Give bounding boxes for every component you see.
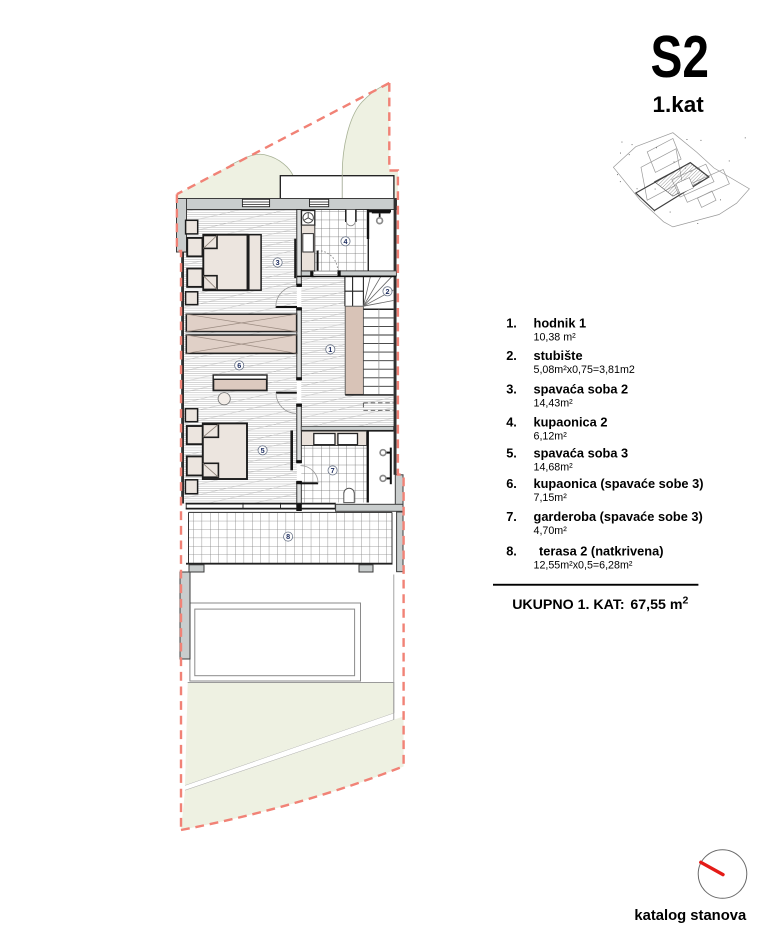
svg-text:1.kat: 1.kat xyxy=(653,92,705,117)
svg-text:8.: 8. xyxy=(506,544,517,559)
svg-text:kupaonica 2: kupaonica 2 xyxy=(534,415,608,430)
svg-text:67,55 m2: 67,55 m2 xyxy=(630,594,688,613)
svg-text:2: 2 xyxy=(386,287,390,296)
svg-text:3.: 3. xyxy=(506,382,517,397)
svg-text:kupaonica (spavaće sobe 3): kupaonica (spavaće sobe 3) xyxy=(534,476,704,491)
svg-text:spavaća soba 2: spavaća soba 2 xyxy=(534,382,629,397)
svg-text:5: 5 xyxy=(261,446,265,455)
svg-text:4,70m²: 4,70m² xyxy=(534,525,568,537)
svg-text:12,55m²x0,5=6,28m²: 12,55m²x0,5=6,28m² xyxy=(534,559,633,571)
svg-text:katalog stanova: katalog stanova xyxy=(634,908,747,924)
svg-text:4.: 4. xyxy=(506,415,517,430)
svg-text:6.: 6. xyxy=(506,476,517,491)
svg-text:5.: 5. xyxy=(506,446,517,461)
svg-text:6: 6 xyxy=(237,361,241,370)
svg-text:7: 7 xyxy=(331,466,335,475)
svg-text:1.: 1. xyxy=(506,316,517,331)
svg-text:2.: 2. xyxy=(506,348,517,363)
svg-text:1: 1 xyxy=(328,345,332,354)
svg-text:8: 8 xyxy=(286,532,290,541)
svg-text:S2: S2 xyxy=(651,24,710,90)
svg-text:14,68m²: 14,68m² xyxy=(534,461,574,473)
svg-text:7,15m²: 7,15m² xyxy=(534,492,568,504)
svg-text:spavaća soba 3: spavaća soba 3 xyxy=(534,446,629,461)
svg-text:3: 3 xyxy=(276,258,280,267)
svg-text:10,38 m²: 10,38 m² xyxy=(534,331,577,343)
svg-text:5,08m²x0,75=3,81m2: 5,08m²x0,75=3,81m2 xyxy=(534,364,635,376)
svg-text:hodnik 1: hodnik 1 xyxy=(534,316,587,331)
svg-text:14,43m²: 14,43m² xyxy=(534,397,574,409)
svg-text:terasa 2 (natkrivena): terasa 2 (natkrivena) xyxy=(539,544,663,559)
svg-text:7.: 7. xyxy=(506,509,517,524)
svg-text:4: 4 xyxy=(344,237,348,246)
svg-text:stubište: stubište xyxy=(534,348,583,363)
svg-text:6,12m²: 6,12m² xyxy=(534,430,568,442)
svg-text:garderoba (spavaće sobe 3): garderoba (spavaće sobe 3) xyxy=(534,509,703,524)
svg-text:UKUPNO 1. KAT:: UKUPNO 1. KAT: xyxy=(512,597,624,613)
